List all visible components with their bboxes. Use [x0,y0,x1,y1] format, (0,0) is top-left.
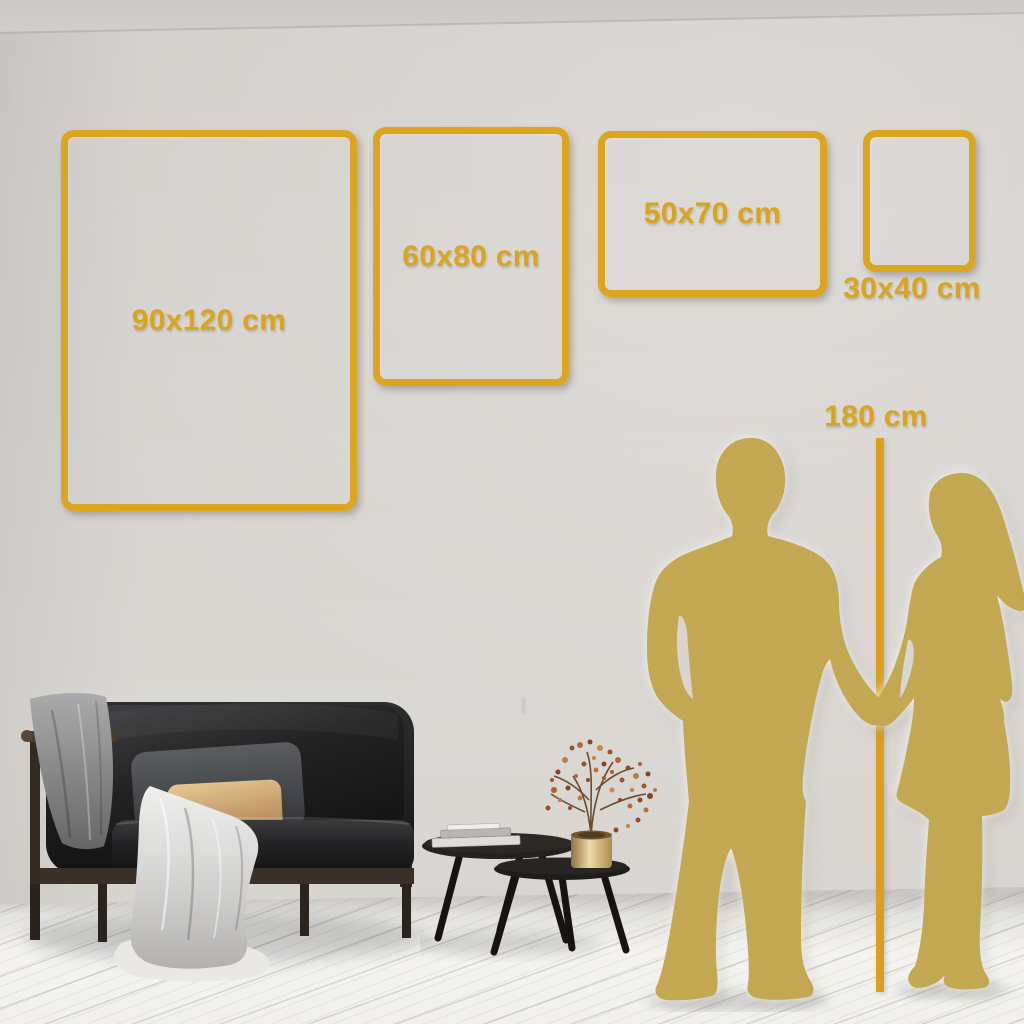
size-label-60x80: 60x80 cm [402,240,540,274]
gold-vase [571,831,612,869]
couple-silhouettes [636,428,1024,1012]
size-label-50x70: 50x70 cm [644,197,782,231]
wall-seam-shadow [522,698,525,714]
size-label-30x40: 30x40 cm [843,272,981,305]
size-frame-50x70: 50x70 cm [598,131,827,297]
man-silhouette [647,438,887,1000]
size-guide-scene: 90x120 cm 60x80 cm 50x70 cm 30x40 cm 180… [0,0,1024,1024]
size-label-30x40-wrap: 30x40 cm [838,272,986,306]
sofa [8,688,432,1024]
size-frame-90x120: 90x120 cm [61,130,357,511]
size-frame-60x80: 60x80 cm [373,127,569,386]
dried-flower-branches [551,752,646,836]
size-frame-30x40 [863,130,976,272]
size-label-90x120: 90x120 cm [132,304,287,338]
woman-silhouette [871,473,1024,989]
gray-blanket [30,693,113,849]
books-stack [431,822,520,847]
